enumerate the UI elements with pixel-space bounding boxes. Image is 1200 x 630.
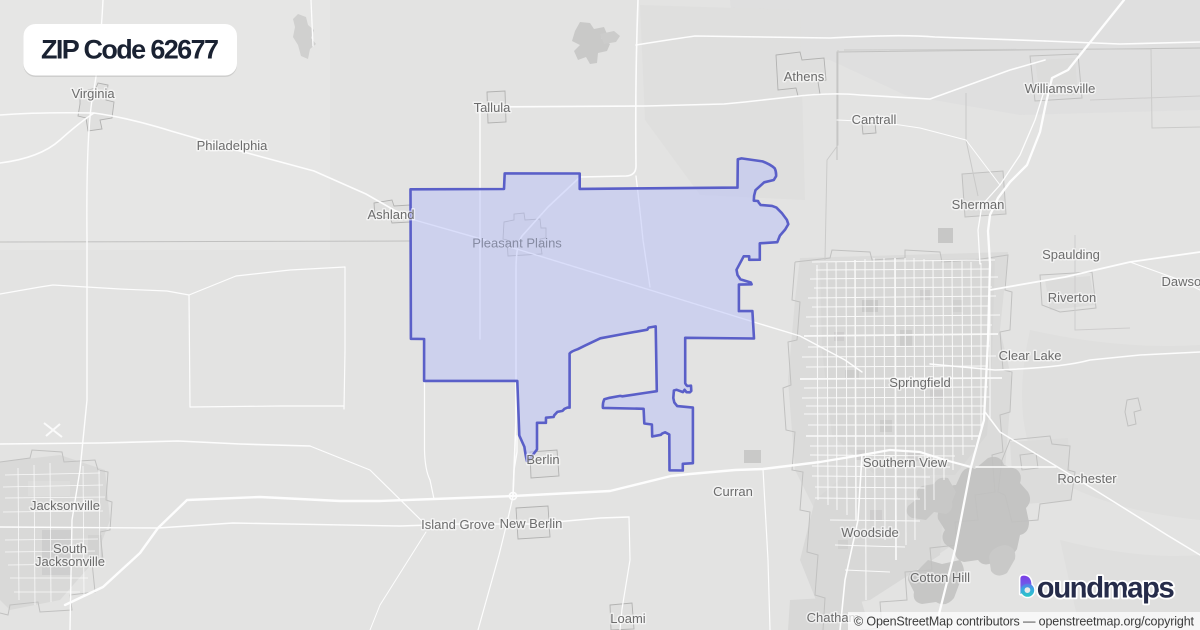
svg-text:Athens: Athens: [784, 69, 825, 84]
svg-text:Virginia: Virginia: [71, 86, 115, 101]
svg-text:Clear Lake: Clear Lake: [999, 348, 1062, 363]
svg-text:Rochester: Rochester: [1057, 471, 1117, 486]
svg-text:Curran: Curran: [713, 484, 753, 499]
svg-text:Loami: Loami: [610, 611, 646, 626]
svg-text:Riverton: Riverton: [1048, 290, 1096, 305]
svg-text:Ashland: Ashland: [368, 207, 415, 222]
svg-text:New Berlin: New Berlin: [500, 516, 563, 531]
svg-text:Jacksonville: Jacksonville: [30, 498, 100, 513]
svg-text:Island Grove: Island Grove: [421, 517, 495, 532]
svg-text:Sherman: Sherman: [952, 197, 1005, 212]
svg-text:Cantrall: Cantrall: [852, 112, 897, 127]
svg-text:Southern View: Southern View: [863, 455, 948, 470]
svg-text:ZIP Code 62677: ZIP Code 62677: [41, 35, 219, 65]
svg-text:Williamsville: Williamsville: [1025, 81, 1096, 96]
svg-text:Berlin: Berlin: [526, 452, 559, 467]
svg-text:Spaulding: Spaulding: [1042, 247, 1100, 262]
svg-text:Jacksonville: Jacksonville: [35, 554, 105, 569]
svg-text:Philadelphia: Philadelphia: [197, 138, 269, 153]
svg-text:Cotton Hill: Cotton Hill: [910, 570, 970, 585]
svg-text:Tallula: Tallula: [474, 100, 512, 115]
svg-text:Dawson: Dawson: [1162, 274, 1200, 289]
svg-text:oundmaps: oundmaps: [1037, 572, 1175, 605]
svg-text:Springfield: Springfield: [889, 375, 950, 390]
svg-text:Woodside: Woodside: [841, 525, 899, 540]
svg-text:Pleasant Plains: Pleasant Plains: [472, 236, 562, 251]
svg-text:© OpenStreetMap contributors —: © OpenStreetMap contributors — openstree…: [854, 615, 1195, 629]
